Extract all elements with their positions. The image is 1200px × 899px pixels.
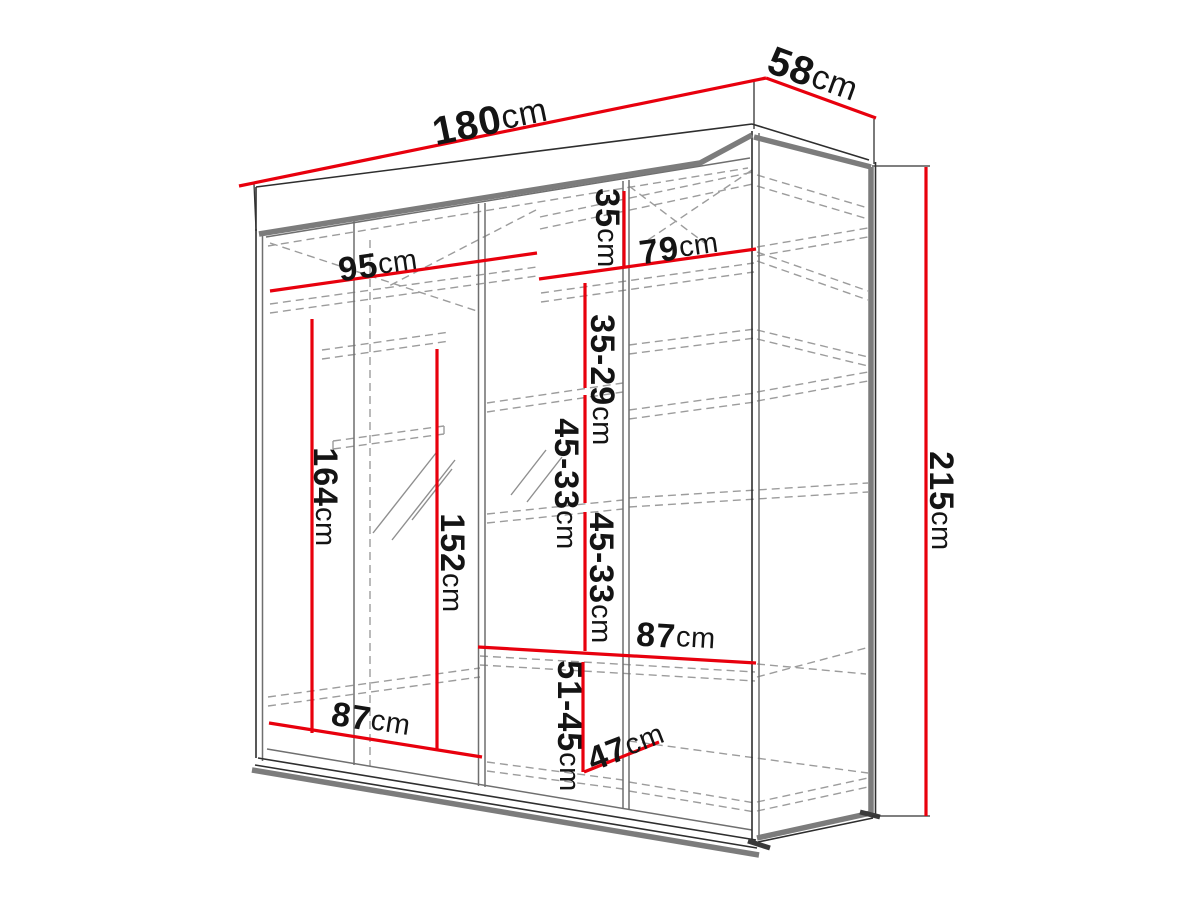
dim-label-bottom-shelf-width: 87cm [329,695,413,745]
dim-label-total-width: 180cm [429,88,552,154]
dim-label-shelf-gap-upper: 35-29cm [583,314,621,446]
wardrobe-dimension-diagram: 180cm 58cm 95cm 79cm 35cm 35-29cm 45-33c… [0,0,1200,899]
dim-label-mirror-height: 152cm [433,513,471,612]
dim-label-shelf-gap-middle: 45-33cm [547,418,585,550]
dim-label-left-section-width: 95cm [336,241,420,290]
dim-label-bottom-shelf-depth: 47cm [582,715,670,779]
dim-label-right-shelf-width: 87cm [635,616,717,659]
dim-label-left-interior-height: 164cm [306,447,344,546]
dim-label-right-section-width: 79cm [637,224,721,273]
dim-label-total-depth: 58cm [762,38,864,111]
diagram-page: 180cm 58cm 95cm 79cm 35cm 35-29cm 45-33c… [0,0,1200,899]
dim-label-total-height: 215cm [922,451,960,550]
dim-label-shelf-gap-lower: 45-33cm [582,512,620,644]
dim-label-top-shelf-height: 35cm [588,188,626,268]
dim-label-bottom-gap-height: 51-45cm [550,660,588,792]
